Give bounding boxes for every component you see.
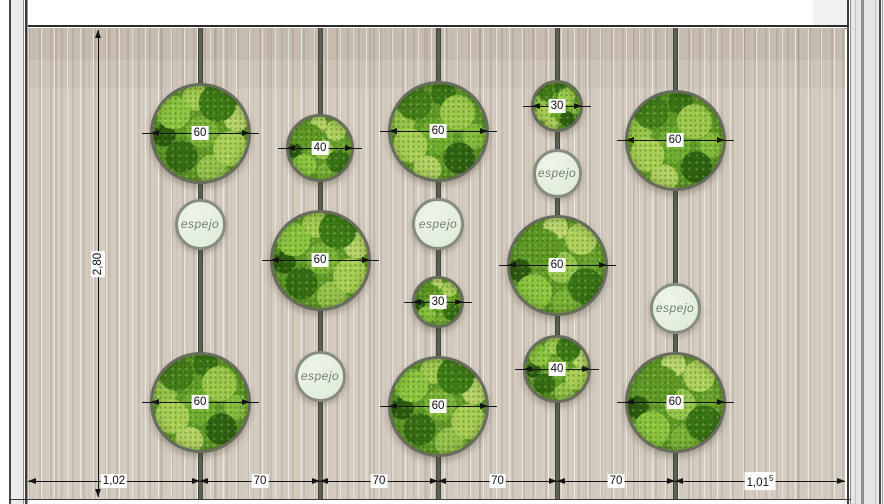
diameter-arrow-left — [271, 257, 279, 263]
bottom-dimension-label: 70 — [608, 474, 625, 488]
mirror-label: espejo — [419, 217, 457, 231]
bottom-dim-tick-arrow — [675, 478, 683, 484]
diameter-arrow-right — [599, 262, 607, 268]
bottom-dimension-label: 1,02 — [101, 474, 127, 488]
diameter-label: 60 — [430, 399, 447, 413]
height-arrow-top — [95, 30, 101, 38]
mirror-label: espejo — [538, 166, 576, 180]
diameter-arrow-left — [151, 399, 159, 405]
dimension-superscript: 5 — [769, 474, 773, 483]
mirror-panel: espejo — [295, 351, 346, 402]
height-dimension-label: 2,80 — [91, 251, 105, 277]
diameter-label: 60 — [192, 395, 209, 409]
diameter-label: 60 — [312, 253, 329, 267]
right-section-line-f — [882, 0, 883, 504]
diameter-label: 60 — [192, 126, 209, 140]
diameter-arrow-left — [508, 262, 516, 268]
bottom-dim-tick-arrow — [320, 478, 328, 484]
mirror-panel: espejo — [175, 199, 226, 250]
top-right-wall-block — [813, 0, 847, 25]
diameter-label: 60 — [667, 133, 684, 147]
diameter-arrow-left — [287, 145, 295, 151]
bottom-dim-tick-arrow — [200, 478, 208, 484]
diameter-label: 60 — [549, 258, 566, 272]
left-section-fill — [11, 0, 23, 504]
mirror-panel: espejo — [412, 198, 464, 250]
bottom-dim-tick-arrow — [557, 478, 565, 484]
diameter-arrow-left — [626, 399, 634, 405]
bottom-dimension-label: 70 — [489, 474, 506, 488]
diameter-arrow-right — [574, 103, 582, 109]
diameter-arrow-right — [582, 366, 590, 372]
diameter-arrow-right — [345, 145, 353, 151]
diameter-arrow-right — [242, 399, 250, 405]
diameter-arrow-left — [389, 403, 397, 409]
diameter-label: 40 — [312, 141, 329, 155]
bottom-dim-tick-arrow — [312, 478, 320, 484]
mirror-panel: espejo — [650, 283, 701, 334]
wall-bottom-edge — [9, 499, 851, 501]
diameter-arrow-right — [717, 399, 725, 405]
diameter-label: 40 — [549, 362, 566, 376]
diameter-arrow-left — [151, 130, 159, 136]
mirror-label: espejo — [656, 301, 694, 315]
right-section-line-d — [875, 0, 876, 504]
diameter-arrow-right — [480, 128, 488, 134]
diameter-label: 30 — [430, 295, 447, 309]
diameter-arrow-right — [480, 403, 488, 409]
bottom-dim-tick-arrow — [667, 478, 675, 484]
diameter-arrow-left — [626, 137, 634, 143]
bottom-dimension-label: 70 — [252, 474, 269, 488]
mirror-label: espejo — [181, 217, 219, 231]
wall-top-edge-outer — [28, 25, 849, 27]
vertical-garden-drawing: 60espejo604060espejo60espejo306030espejo… — [0, 0, 884, 504]
right-section-line-c — [861, 0, 864, 504]
diameter-label: 30 — [549, 99, 566, 113]
right-section-line-e — [879, 0, 881, 504]
bottom-dim-tick-arrow — [549, 478, 557, 484]
height-arrow-bottom — [95, 489, 101, 497]
bottom-dim-tick-arrow — [438, 478, 446, 484]
diameter-arrow-left — [524, 366, 532, 372]
diameter-arrow-left — [413, 299, 421, 305]
diameter-label: 60 — [430, 124, 447, 138]
diameter-arrow-right — [362, 257, 370, 263]
bottom-dim-tick-arrow — [192, 478, 200, 484]
diameter-arrow-right — [242, 130, 250, 136]
mirror-label: espejo — [301, 369, 339, 383]
bottom-dimension-label: 1,015 — [745, 472, 776, 490]
bottom-dim-arrow-end-left — [28, 478, 36, 484]
mirror-panel: espejo — [533, 149, 582, 198]
diameter-arrow-left — [532, 103, 540, 109]
diameter-arrow-right — [455, 299, 463, 305]
diameter-label: 60 — [667, 395, 684, 409]
bottom-dim-arrow-end-right — [837, 478, 845, 484]
bottom-dim-tick-arrow — [430, 478, 438, 484]
diameter-arrow-right — [717, 137, 725, 143]
right-section-line-b — [855, 0, 856, 504]
diameter-arrow-left — [389, 128, 397, 134]
bottom-dimension-label: 70 — [371, 474, 388, 488]
